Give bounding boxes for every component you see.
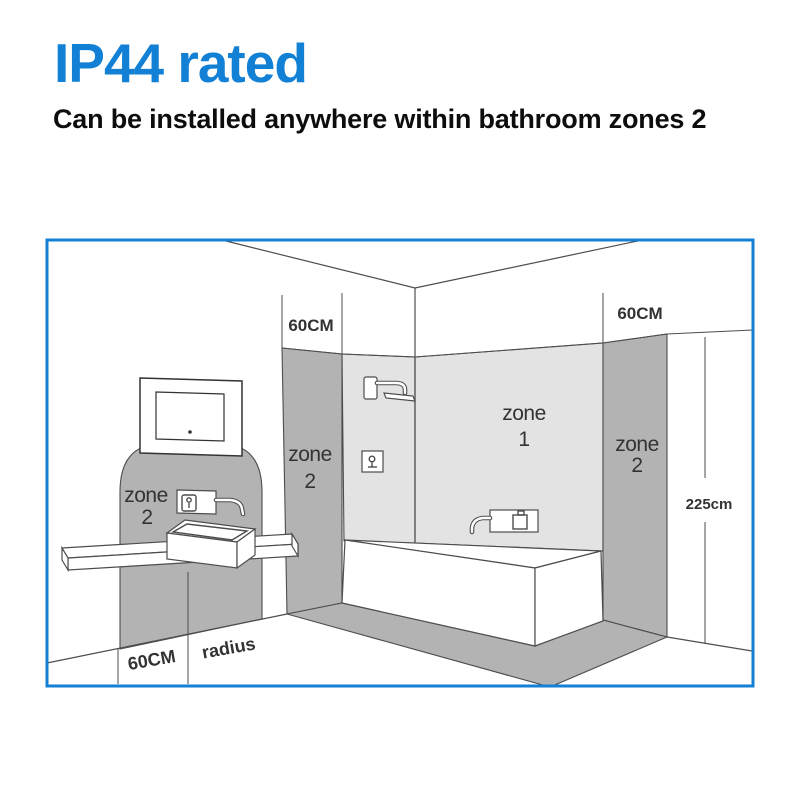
label-main-zone-word: zone bbox=[502, 402, 546, 425]
label-main-zone-num: 1 bbox=[518, 428, 529, 451]
bathroom-zones-diagram: 60CM 60CM 225cm zone 2 zone 2 zone 1 zon… bbox=[0, 0, 800, 800]
floor-edge-right bbox=[667, 637, 752, 651]
wash-basin bbox=[167, 520, 255, 568]
label-basin-zone-num: 2 bbox=[141, 506, 152, 529]
mirror-sensor-dot bbox=[188, 430, 192, 434]
label-right-zone-word: zone bbox=[615, 433, 659, 456]
shower-flange bbox=[364, 377, 377, 399]
label-right-zone-num: 2 bbox=[631, 454, 642, 477]
zone2-right-stripe bbox=[603, 334, 667, 637]
led-mirror bbox=[140, 378, 242, 456]
ceiling-edge bbox=[222, 239, 647, 288]
shower-valve-icon bbox=[362, 451, 383, 472]
label-60cm-top-right: 60CM bbox=[617, 304, 662, 323]
label-60cm-top-left: 60CM bbox=[288, 316, 333, 335]
label-radius: radius bbox=[200, 633, 257, 662]
label-basin-zone-word: zone bbox=[124, 484, 168, 507]
label-60cm-floor: 60CM bbox=[126, 646, 177, 674]
label-shower-zone-word: zone bbox=[288, 443, 332, 466]
label-shower-zone-num: 2 bbox=[304, 470, 315, 493]
label-225cm: 225cm bbox=[686, 496, 733, 513]
